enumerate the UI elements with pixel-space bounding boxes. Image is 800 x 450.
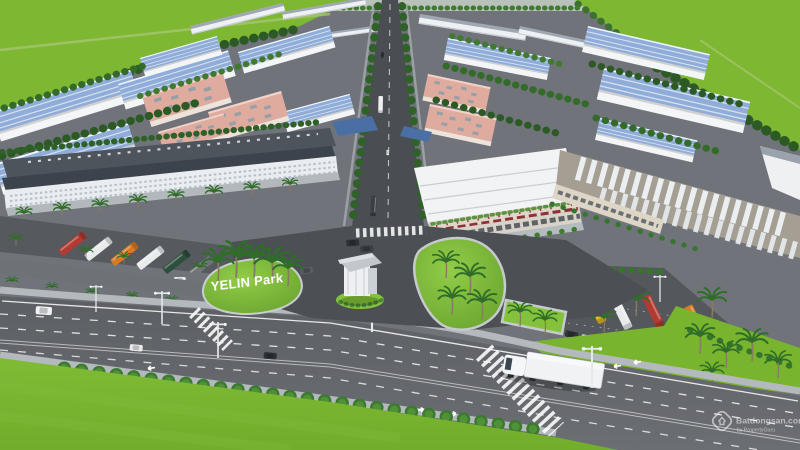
watermark-byline: by PropertyGuru: [737, 428, 775, 434]
car: [263, 352, 277, 360]
car: [129, 344, 143, 352]
car: [346, 239, 359, 246]
van: [35, 306, 52, 315]
render-canvas: YELIN Park Batdongsan.com by PropertyGur…: [0, 0, 800, 450]
watermark-brand: Batdongsan.com: [736, 416, 800, 426]
gatehouse-side: [368, 268, 377, 294]
car: [360, 245, 373, 252]
aerial-render: YELIN Park Batdongsan.com by PropertyGur…: [0, 0, 800, 450]
car: [386, 150, 389, 155]
van: [378, 96, 383, 113]
gatehouse-shadow: [340, 296, 380, 306]
car: [381, 52, 384, 58]
